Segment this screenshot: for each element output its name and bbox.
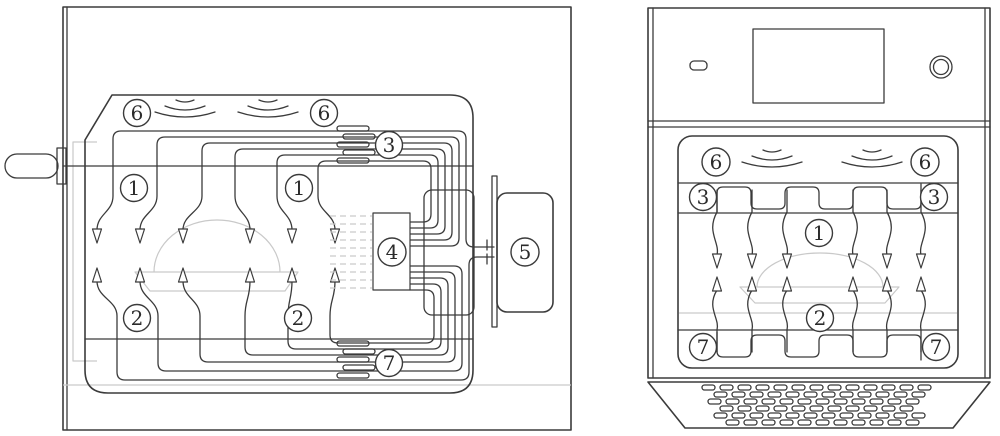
callout-7-label: 7	[697, 335, 710, 359]
callout-1-label: 1	[813, 221, 826, 245]
steam-wave-icon	[742, 150, 802, 167]
outer-cabinet	[63, 7, 571, 430]
callout-4-label: 4	[386, 240, 399, 264]
food-dome-front	[740, 253, 899, 303]
dome-arc	[757, 253, 883, 287]
grille-hole	[774, 385, 787, 390]
grille-hole	[804, 392, 817, 397]
grille-hole	[732, 392, 745, 397]
grille-hole	[900, 385, 913, 390]
grille-hole	[900, 406, 913, 411]
grille-hole	[780, 399, 793, 404]
grille-hole	[828, 385, 841, 390]
callout-6-label: 6	[919, 150, 932, 174]
grille-hole	[744, 399, 757, 404]
display-screen-icon	[753, 29, 884, 103]
grille-hole	[864, 385, 877, 390]
grille-hole	[846, 385, 859, 390]
grille-hole	[762, 399, 775, 404]
airflow-arrows	[93, 229, 340, 282]
grille-hole	[756, 406, 769, 411]
heater-fins-bottom	[337, 341, 375, 378]
steam-wave-icon	[238, 100, 298, 117]
grille-hole	[906, 399, 919, 404]
food-dome	[135, 220, 298, 291]
grille-hole	[792, 406, 805, 411]
grille-hole	[756, 385, 769, 390]
grille-hole	[822, 392, 835, 397]
wave-emitters	[155, 100, 298, 117]
panel-separator	[648, 121, 990, 127]
grille-hole	[894, 392, 907, 397]
grille-hole	[714, 392, 727, 397]
grille-hole	[834, 399, 847, 404]
grille-hole	[750, 392, 763, 397]
handle-bar	[5, 154, 58, 178]
vent-base	[648, 382, 990, 428]
grille-hole	[828, 406, 841, 411]
serpentine-heater-icon-bottom	[717, 332, 921, 360]
grille-hole	[732, 413, 745, 418]
callout-7-label: 7	[930, 335, 943, 359]
grille-hole	[786, 413, 799, 418]
grille-hole	[816, 420, 829, 425]
grille-hole	[768, 413, 781, 418]
door-handle	[5, 148, 66, 184]
grille-hole	[870, 399, 883, 404]
grille-hole	[882, 385, 895, 390]
grille-hole	[810, 385, 823, 390]
grille-hole	[798, 420, 811, 425]
grille-hole	[768, 392, 781, 397]
grille-hole	[738, 385, 751, 390]
grille-hole	[846, 406, 859, 411]
grille-hole	[738, 406, 751, 411]
grille-hole	[804, 413, 817, 418]
callout-7-label: 7	[383, 351, 396, 375]
callout-2-label: 2	[814, 306, 827, 330]
callouts-right: 6 6 3 3 1 2 7 7	[690, 148, 950, 361]
grille-hole	[882, 406, 895, 411]
grille-hole	[876, 413, 889, 418]
perforated-grille-icon	[702, 385, 931, 425]
grille-hole	[816, 399, 829, 404]
grille-hole	[762, 420, 775, 425]
grille-hole	[726, 399, 739, 404]
callout-6-label: 6	[318, 101, 331, 125]
technical-drawing: 6 6 3 1 1 4 5 2 2 7	[0, 0, 1000, 436]
grille-hole	[876, 392, 889, 397]
tray-plate	[135, 272, 298, 291]
tray-plate	[740, 287, 899, 303]
grille-hole	[708, 399, 721, 404]
grille-hole	[792, 385, 805, 390]
grille-hole	[888, 420, 901, 425]
grille-hole	[834, 420, 847, 425]
grille-hole	[810, 406, 823, 411]
steam-wave-icon	[842, 150, 902, 167]
grille-hole	[774, 406, 787, 411]
figure-right-front-view: 6 6 3 3 1 2 7 7	[648, 8, 990, 428]
grille-hole	[750, 413, 763, 418]
base-trapezoid	[648, 382, 990, 428]
callout-2-label: 2	[292, 306, 305, 330]
grille-hole	[726, 420, 739, 425]
grille-hole	[744, 420, 757, 425]
callout-1-label: 1	[293, 176, 306, 200]
grille-hole	[888, 399, 901, 404]
grille-hole	[822, 413, 835, 418]
control-panel	[690, 29, 952, 103]
patent-figure-canvas: 6 6 3 1 1 4 5 2 2 7	[0, 0, 1000, 436]
grille-hole	[864, 406, 877, 411]
grille-hole	[840, 392, 853, 397]
callout-6-label: 6	[131, 101, 144, 125]
callout-6-label: 6	[710, 150, 723, 174]
steam-wave-icon	[155, 100, 215, 117]
grille-hole	[840, 413, 853, 418]
serpentine-heater-icon-top	[717, 184, 921, 212]
grille-hole	[714, 413, 727, 418]
grille-hole	[870, 420, 883, 425]
callout-3-label: 3	[383, 133, 396, 157]
grille-hole	[780, 420, 793, 425]
grille-hole	[852, 399, 865, 404]
grille-hole	[918, 385, 931, 390]
figure-left-side-view: 6 6 3 1 1 4 5 2 2 7	[5, 7, 571, 430]
grille-hole	[912, 413, 925, 418]
rotary-knob-inner	[934, 60, 949, 75]
grille-hole	[852, 420, 865, 425]
grille-hole	[894, 413, 907, 418]
grille-hole	[720, 385, 733, 390]
steam-chamber-outline	[85, 95, 473, 393]
grille-hole	[906, 420, 919, 425]
grille-hole	[912, 392, 925, 397]
grille-hole	[786, 392, 799, 397]
grille-hole	[858, 413, 871, 418]
dome-arc	[154, 220, 280, 272]
callout-3-label: 3	[697, 185, 710, 209]
grille-hole	[702, 385, 715, 390]
callout-1-label: 1	[128, 176, 141, 200]
cabinet-outline	[63, 7, 571, 430]
callout-3-label: 3	[928, 185, 941, 209]
wave-emitters-front	[742, 150, 902, 167]
grille-hole	[798, 399, 811, 404]
grille-hole	[720, 406, 733, 411]
grille-hole	[858, 392, 871, 397]
callout-2-label: 2	[131, 306, 144, 330]
power-button-icon	[690, 61, 707, 70]
callout-5-label: 5	[519, 240, 532, 264]
